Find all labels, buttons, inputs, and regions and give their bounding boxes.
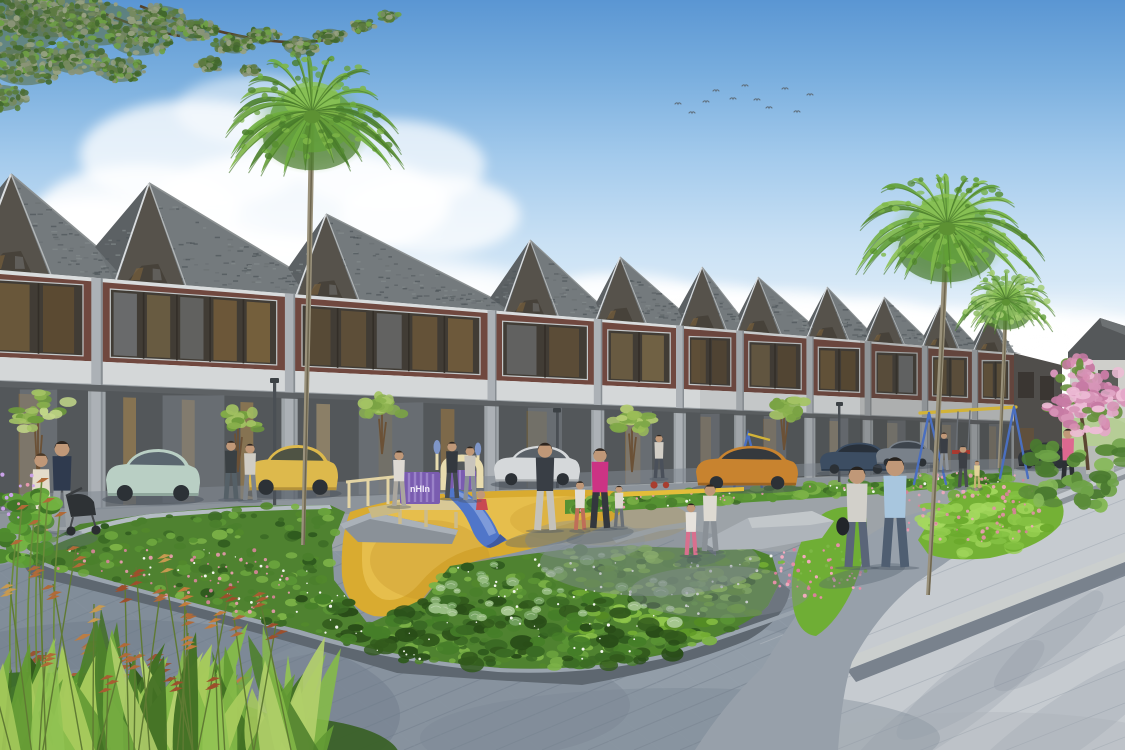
svg-text:nHln: nHln — [410, 484, 430, 494]
